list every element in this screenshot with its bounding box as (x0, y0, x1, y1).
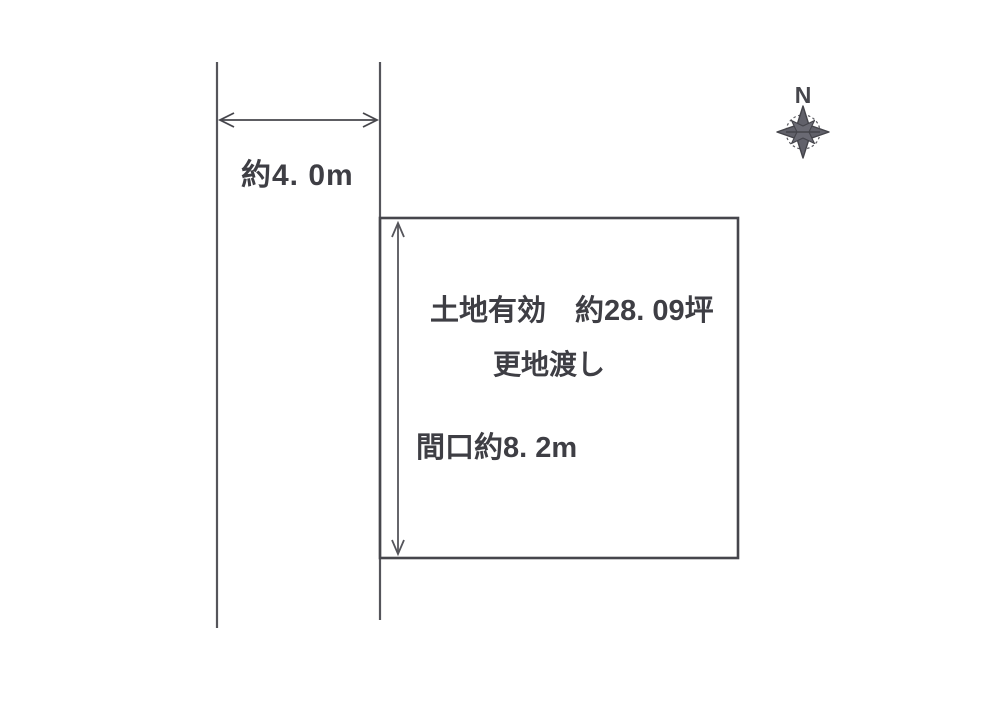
compass-north-label: N (795, 84, 812, 107)
road-width-label: 約4. 0m (241, 161, 354, 191)
frontage-arrow (392, 223, 404, 554)
plot-condition-label: 更地渡し (493, 351, 605, 379)
plot-boundary (380, 218, 738, 558)
plot-frontage-label: 間口約8. 2m (416, 434, 577, 463)
site-plan-page: 約4. 0m 土地有効 約28. 09坪 更地渡し 間口約8. 2m N (0, 0, 1000, 706)
plot-area-label: 土地有効 約28. 09坪 (430, 297, 714, 326)
road-width-arrow (220, 113, 377, 127)
compass-rose-icon (777, 106, 829, 158)
